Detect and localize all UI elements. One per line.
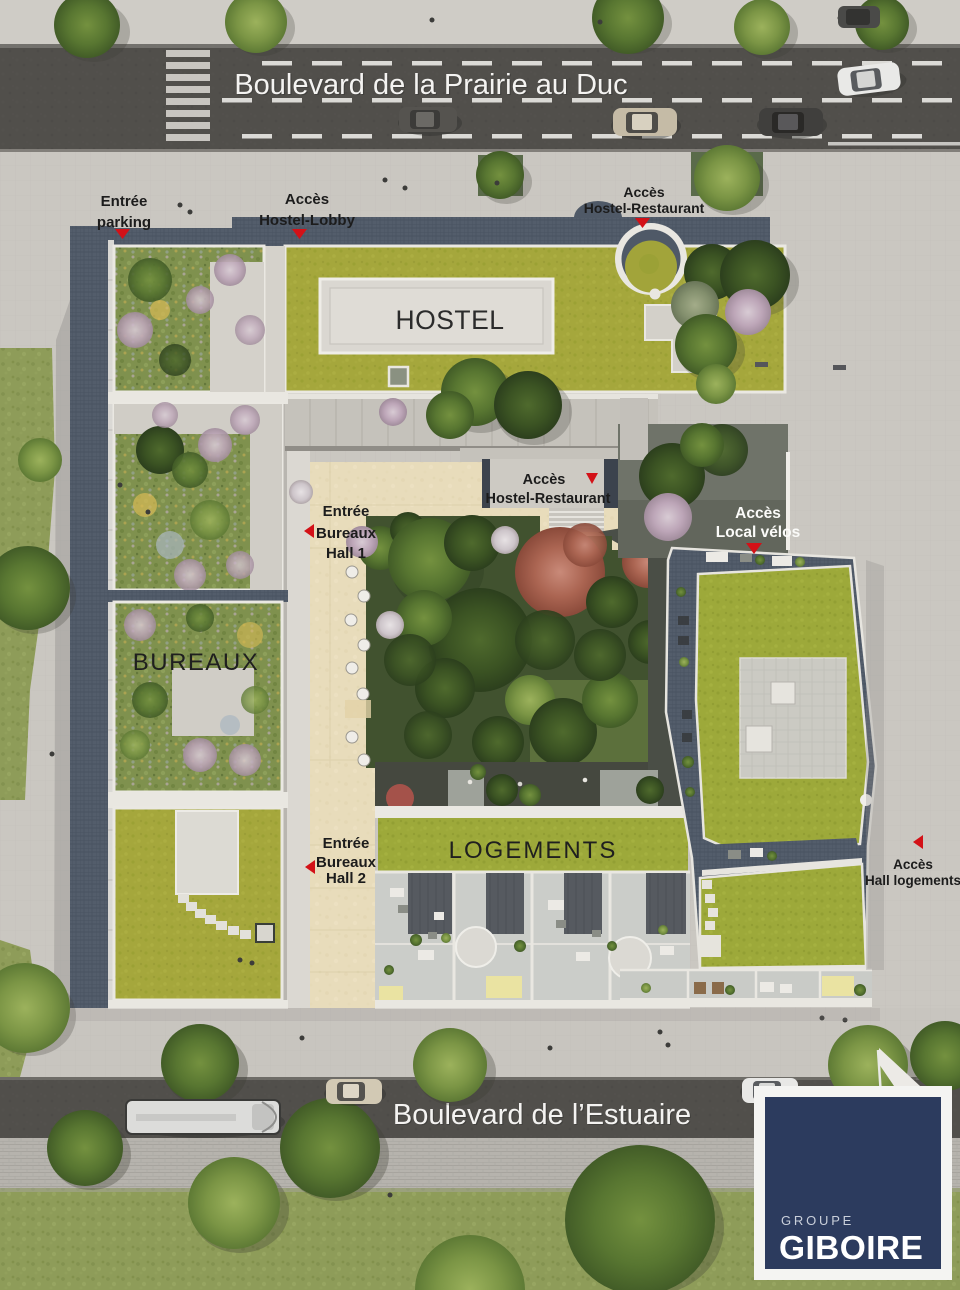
svg-text:Bureaux: Bureaux bbox=[316, 854, 377, 871]
svg-text:GIBOIRE: GIBOIRE bbox=[779, 1230, 923, 1267]
svg-text:Hall logements: Hall logements bbox=[865, 873, 960, 888]
svg-text:GROUPE: GROUPE bbox=[781, 1213, 854, 1228]
svg-text:HOSTEL: HOSTEL bbox=[395, 305, 504, 335]
svg-text:Hostel-Restaurant: Hostel-Restaurant bbox=[584, 200, 705, 216]
svg-text:Accès: Accès bbox=[893, 857, 933, 872]
svg-text:Entrée: Entrée bbox=[323, 503, 370, 520]
svg-text:Accès: Accès bbox=[285, 191, 329, 208]
svg-text:Entrée: Entrée bbox=[323, 835, 370, 852]
svg-text:parking: parking bbox=[97, 214, 151, 231]
svg-text:Boulevard de la Prairie au Duc: Boulevard de la Prairie au Duc bbox=[234, 69, 627, 101]
svg-text:Accès: Accès bbox=[623, 184, 664, 200]
svg-text:Local vélos: Local vélos bbox=[716, 524, 800, 541]
svg-text:Hostel-Lobby: Hostel-Lobby bbox=[259, 212, 355, 229]
svg-text:Boulevard de l’Estuaire: Boulevard de l’Estuaire bbox=[393, 1099, 691, 1131]
svg-text:LOGEMENTS: LOGEMENTS bbox=[449, 837, 618, 864]
svg-text:Entrée: Entrée bbox=[101, 193, 148, 210]
svg-text:Accès: Accès bbox=[735, 505, 781, 522]
svg-text:Accès: Accès bbox=[523, 472, 566, 488]
svg-text:Hall 2: Hall 2 bbox=[326, 870, 366, 887]
svg-text:BUREAUX: BUREAUX bbox=[133, 649, 260, 676]
svg-text:Hall 1: Hall 1 bbox=[326, 545, 366, 562]
svg-text:Hostel-Restaurant: Hostel-Restaurant bbox=[486, 491, 611, 507]
svg-text:Bureaux: Bureaux bbox=[316, 525, 377, 542]
